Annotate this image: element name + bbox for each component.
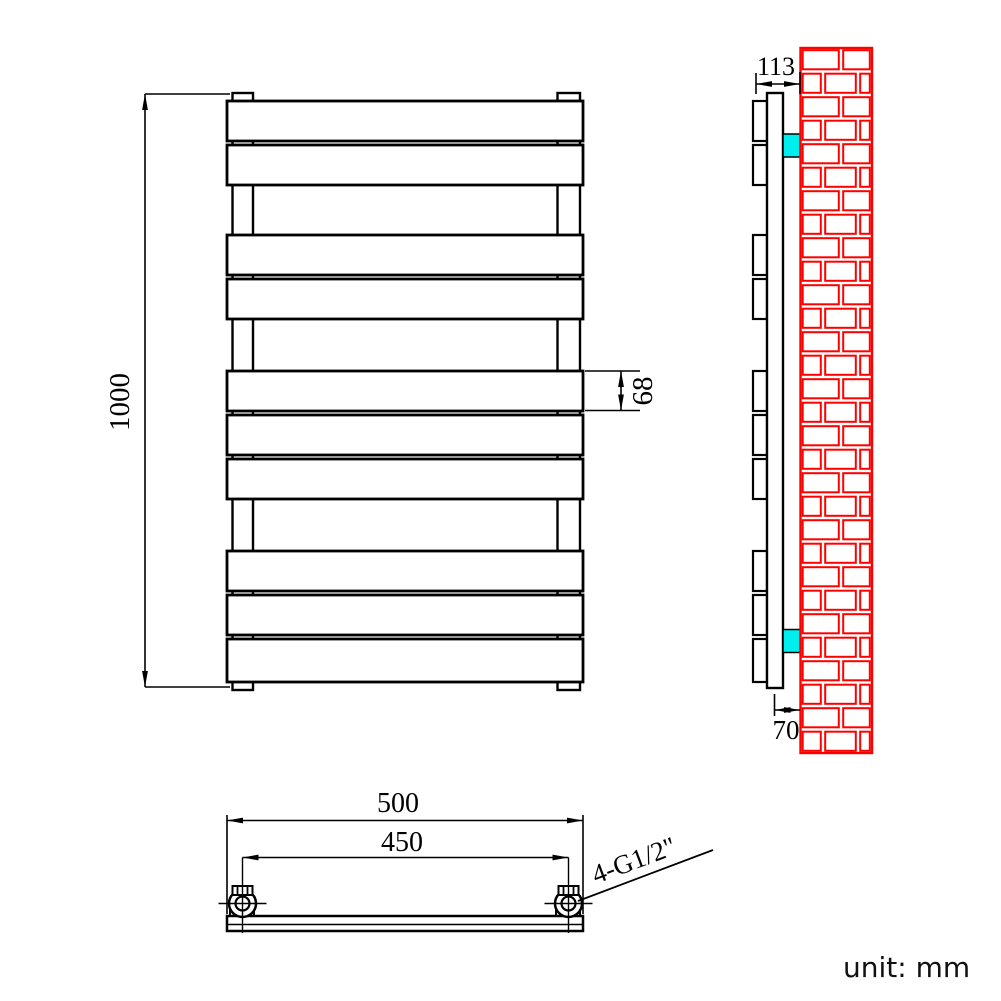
dim-arrow (618, 395, 624, 411)
dim-arrow (227, 818, 243, 824)
dim-panel-height-label: 68 (627, 377, 659, 406)
panel-side-profile (753, 639, 767, 682)
radiator-panel (227, 459, 583, 499)
radiator-panel (227, 235, 583, 275)
wall-bracket-bottom (783, 630, 801, 653)
radiator-panel (227, 101, 583, 141)
radiator-panel (227, 279, 583, 319)
radiator-panel (227, 639, 583, 682)
radiator-panel (227, 595, 583, 635)
dim-wall-to-pipe-label: 70 (773, 715, 800, 745)
radiator-panel (227, 371, 583, 411)
dim-arrow (567, 818, 583, 824)
side-view (753, 93, 801, 688)
panel-side-profile (753, 459, 767, 499)
panel-side-profile (753, 551, 767, 591)
panel-side-profile (753, 235, 767, 275)
dim-overall-height-label: 1000 (104, 373, 136, 431)
radiator-technical-drawing: 1000 68 113 70 500 450 4-G1/2" unit: mm (0, 0, 1001, 1001)
bottom-panel-profile (227, 916, 583, 931)
radiator-panel (227, 415, 583, 455)
wall-outline (801, 48, 873, 753)
radiator-panel (227, 551, 583, 591)
panel-side-profile (753, 101, 767, 141)
brick-wall (801, 48, 873, 753)
dim-arrow (756, 81, 772, 87)
plan-view (219, 858, 593, 934)
dim-arrow (553, 855, 569, 861)
vertical-rail-side (767, 93, 783, 688)
dim-arrow (784, 707, 800, 713)
panel-side-profile (753, 145, 767, 185)
front-view (227, 93, 583, 690)
dim-arrow (784, 81, 800, 87)
dim-arrow (142, 671, 148, 687)
panel-side-profile (753, 415, 767, 455)
dim-arrow (618, 371, 624, 387)
dim-overall-depth-label: 113 (757, 52, 795, 81)
unit-note: unit: mm (843, 951, 970, 984)
wall-bracket-top (783, 134, 801, 157)
panel-side-profile (753, 279, 767, 319)
panel-side-profile (753, 595, 767, 635)
dim-connection-centers-label: 450 (381, 827, 423, 858)
dim-arrow (142, 94, 148, 110)
dim-arrow (243, 855, 259, 861)
technical-drawing-canvas: 1000 68 113 70 500 450 4-G1/2" unit: mm (0, 0, 1001, 1001)
panel-side-profile (753, 371, 767, 411)
radiator-panel (227, 145, 583, 185)
dim-overall-width-label: 500 (377, 788, 419, 819)
